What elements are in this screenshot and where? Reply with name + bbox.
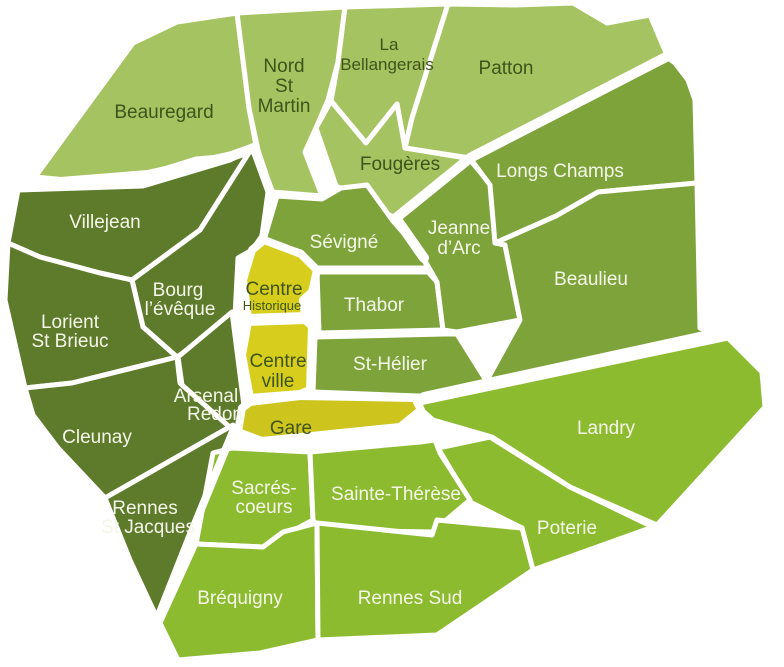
district-shape-centre-ville[interactable] (242, 320, 312, 398)
district-shape-gare[interactable] (238, 396, 421, 441)
districts-map-svg: Beauregard Nord St Martin La Bellangerai… (0, 0, 784, 667)
rennes-districts-map: Beauregard Nord St Martin La Bellangerai… (0, 0, 784, 667)
district-gare (238, 396, 421, 441)
district-rennes-sud (317, 520, 533, 640)
district-centre-ville (242, 320, 312, 398)
district-shape-thabor[interactable] (317, 272, 443, 333)
district-shape-rennes-sud[interactable] (317, 520, 533, 640)
district-thabor (317, 272, 443, 333)
